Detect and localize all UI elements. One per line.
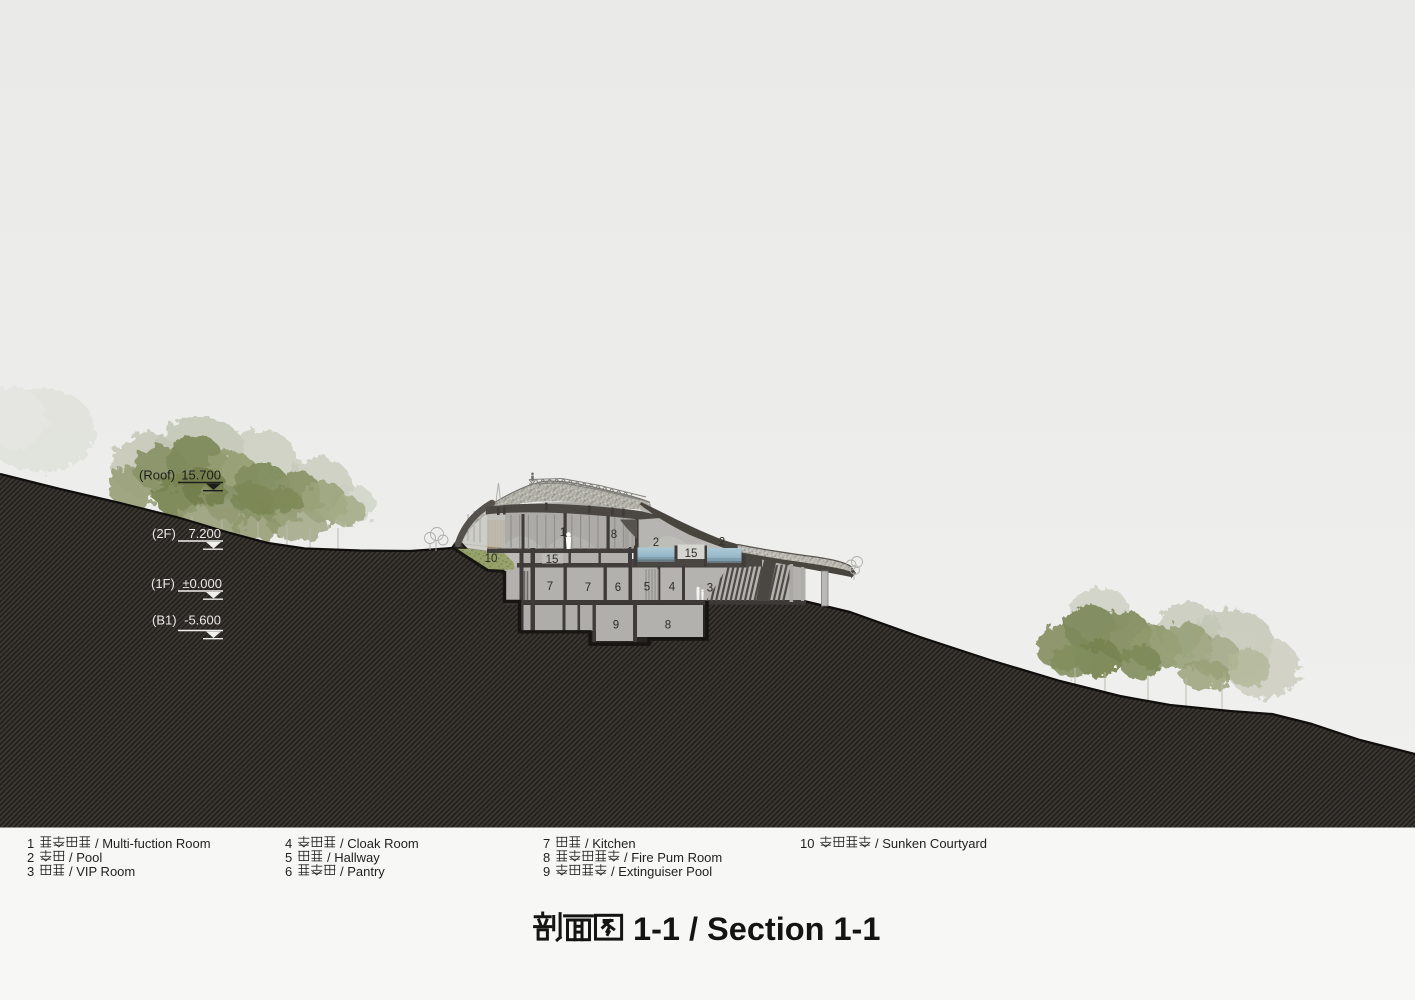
svg-text:3: 3 (27, 864, 34, 879)
svg-text:1-1 / Section 1-1: 1-1 / Section 1-1 (633, 911, 880, 947)
svg-text:6: 6 (285, 864, 292, 879)
svg-text:8: 8 (611, 529, 617, 541)
svg-text:(1F): (1F) (151, 576, 175, 591)
svg-text:4: 4 (669, 582, 676, 594)
svg-text:7.200: 7.200 (188, 526, 221, 541)
svg-text:9: 9 (543, 864, 550, 879)
svg-text:15: 15 (546, 554, 559, 566)
svg-text:5: 5 (285, 850, 292, 865)
svg-text:15.700: 15.700 (181, 468, 221, 483)
svg-text:/ Extinguiser Pool: / Extinguiser Pool (611, 864, 712, 879)
svg-text:1: 1 (560, 527, 566, 539)
svg-text:9: 9 (613, 620, 619, 632)
svg-text:6: 6 (615, 582, 621, 594)
svg-text:2: 2 (653, 537, 659, 549)
svg-text:2: 2 (719, 537, 725, 549)
svg-text:-5.600: -5.600 (184, 613, 221, 628)
svg-text:5: 5 (644, 582, 650, 594)
svg-text:/ Hallway: / Hallway (327, 850, 380, 865)
svg-text:3: 3 (707, 583, 713, 595)
svg-text:/ Cloak Room: / Cloak Room (340, 836, 419, 851)
svg-text:/ VIP Room: / VIP Room (69, 864, 135, 879)
svg-text:(Roof): (Roof) (139, 468, 175, 483)
svg-text:/ Pantry: / Pantry (340, 864, 385, 879)
svg-text:/ Sunken Courtyard: / Sunken Courtyard (875, 836, 987, 851)
svg-text:/ Multi-fuction Room: / Multi-fuction Room (95, 836, 211, 851)
svg-text:10: 10 (800, 836, 814, 851)
svg-text:/ Fire Pum Room: / Fire Pum Room (624, 850, 722, 865)
svg-text:2: 2 (27, 850, 34, 865)
svg-text:15: 15 (685, 548, 698, 560)
svg-text:/ Pool: / Pool (69, 850, 102, 865)
svg-text:±0.000: ±0.000 (182, 576, 222, 591)
svg-text:7: 7 (543, 836, 550, 851)
svg-text:8: 8 (665, 620, 671, 632)
svg-text:4: 4 (285, 836, 292, 851)
svg-text:8: 8 (543, 850, 550, 865)
svg-text:(B1): (B1) (152, 613, 177, 628)
svg-text:7: 7 (547, 581, 553, 593)
svg-text:1: 1 (27, 836, 34, 851)
svg-text:10: 10 (485, 553, 498, 565)
svg-text:7: 7 (585, 582, 591, 594)
svg-text:/ Kitchen: / Kitchen (585, 836, 636, 851)
svg-text:(2F): (2F) (152, 526, 176, 541)
